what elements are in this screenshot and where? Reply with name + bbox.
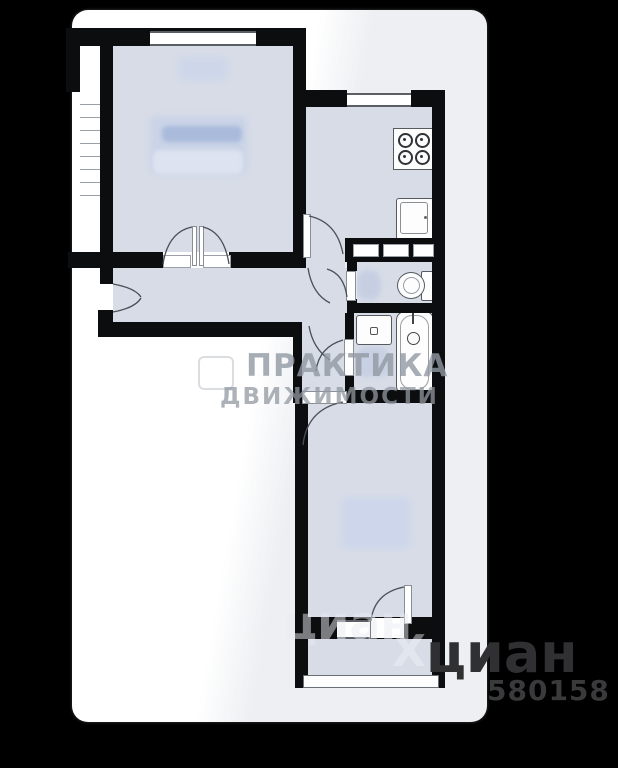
wc-blob <box>357 270 381 300</box>
furniture-blob-small <box>178 57 228 81</box>
wall-living-left <box>100 46 113 268</box>
room-hallway <box>113 268 347 322</box>
wall-bath-left-top <box>345 313 354 339</box>
sofa-blob-light <box>153 150 243 174</box>
wall-kitchen-top-left <box>293 90 347 107</box>
bed-blob <box>342 497 410 549</box>
kitchen-sink-icon <box>396 198 434 240</box>
living-door-tab <box>203 255 231 268</box>
kitchen-doorway <box>306 238 345 270</box>
vent-cell <box>353 244 379 257</box>
entrance-door-gap <box>99 284 113 310</box>
stairs-hatch <box>80 92 100 208</box>
stove-icon <box>393 128 433 170</box>
wall-living-bottom-left <box>68 252 163 268</box>
vent-cell <box>383 244 409 257</box>
wall-hall-bottom <box>98 322 302 337</box>
floor-plan-image: ПРАКТИКА ДВИЖИМОСТИ циан Х циан 580158 <box>0 0 618 768</box>
window-kitchen <box>347 93 411 107</box>
wc-door-leaf <box>346 271 356 301</box>
bathroom-sink-icon <box>356 315 392 345</box>
wall-wc-left-top <box>347 262 357 271</box>
watermark-listing-number: 580158 <box>487 674 610 707</box>
wall-hall-left-top <box>100 268 113 284</box>
sofa-blob-shade <box>162 126 242 142</box>
watermark-cian-x: Х <box>392 626 426 677</box>
window-living <box>150 31 256 46</box>
watermark-agency-line1: ПРАКТИКА <box>246 348 448 384</box>
wall-left-stub <box>66 28 80 92</box>
living-door-leaf <box>192 226 197 266</box>
watermark-agency-line2: ДВИЖИМОСТИ <box>220 384 439 410</box>
wall-wc-bottom <box>347 303 445 313</box>
living-door-tab <box>163 255 191 268</box>
wall-living-bottom-right <box>229 252 293 268</box>
kitchen-door-leaf <box>303 214 311 258</box>
vent-cell <box>413 244 434 257</box>
living-door-leaf <box>199 226 204 266</box>
